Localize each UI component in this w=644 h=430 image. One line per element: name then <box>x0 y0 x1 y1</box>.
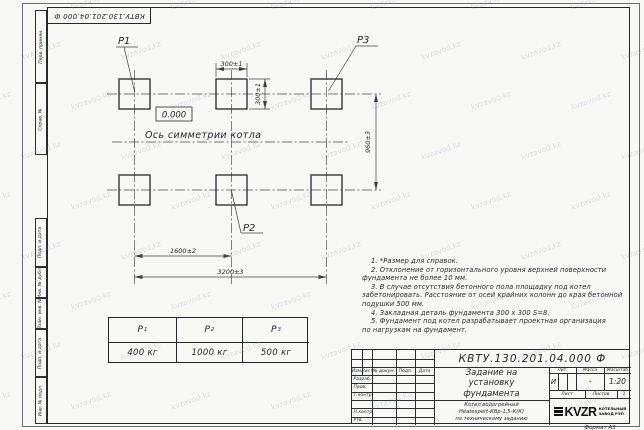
load-point-label-p3: P3 <box>357 35 369 46</box>
note-line: фундамента не более 10 мм. <box>362 274 634 283</box>
tb-sheets-label: Листов <box>585 390 617 398</box>
tb-row-blank <box>354 400 373 408</box>
tb-lit-value: И <box>549 373 558 390</box>
logo-bars-icon <box>554 406 563 418</box>
tb-scale-value: 1:20 <box>604 373 631 390</box>
note-line: 2. Отклонение от горизонтального уровня … <box>362 266 634 275</box>
product-name: Котел водогрейный Heatexpert-КВр-1,5-К(К… <box>434 400 549 425</box>
load-table-value-p3: 500 кг <box>242 342 309 362</box>
note-line: 1. *Размер для справок. <box>362 257 634 266</box>
notes-block: 1. *Размер для справок. 2. Отклонение от… <box>362 257 634 334</box>
note-line: 5. Фундамент под котел разрабатывает про… <box>362 317 634 326</box>
dim-row-spacing-label: 960±3 <box>364 131 372 153</box>
note-line: 3. В случае отсутствия бетонного пола пл… <box>362 283 634 292</box>
tb-col-data: Дата <box>415 367 434 375</box>
dim-total-width-label: 3200±3 <box>217 268 243 276</box>
note-line: по нагрузкам на фундамент. <box>362 326 634 335</box>
tb-col-podp: Подп. <box>396 367 415 375</box>
note-line: подушки 500 мм. <box>362 300 634 309</box>
arrowhead <box>135 254 143 258</box>
arrowhead <box>319 275 327 279</box>
logo-subtitle: КОТЕЛЬНЫЙ ЗАВОД РЭП <box>599 407 627 416</box>
dim-pad-height-label: 300±1 <box>254 83 262 105</box>
note-line: 4. Закладная деталь фундамента 300 х 300… <box>362 309 634 318</box>
arrowhead <box>263 79 267 87</box>
tb-line <box>558 373 559 390</box>
tb-line <box>396 350 397 425</box>
load-table-value-p1: 400 кг <box>109 342 176 362</box>
arrowhead <box>374 182 378 190</box>
tb-col-list: Лист <box>362 367 372 375</box>
tb-row-razrab: Разраб. <box>354 375 373 383</box>
load-table-header-p3: P3 <box>242 318 309 342</box>
tb-row-utv: Утв. <box>354 417 373 425</box>
tb-row-tkontr: Т.контр. <box>354 392 373 400</box>
title-block: КВТУ.130.201.04.000 Ф Изм. Лист № докум.… <box>351 349 630 424</box>
tb-sheets-value: 1 <box>617 390 631 398</box>
arrowhead <box>263 101 267 109</box>
doc-number: КВТУ.130.201.04.000 Ф <box>434 350 631 367</box>
tb-line <box>567 373 568 390</box>
tb-col-dokum: № докум. <box>372 367 396 375</box>
tb-row-nkontr: Н.контр. <box>354 408 373 416</box>
logo-text: KVZR <box>565 405 597 419</box>
arrowhead <box>224 254 232 258</box>
dim-pad-width-label: 300±1 <box>221 60 243 68</box>
load-table-header-p2: P2 <box>176 318 242 342</box>
symmetry-axis-label: Ось симметрии котла <box>145 130 261 141</box>
load-point-label-p1: P1 <box>118 36 130 47</box>
tb-line <box>415 350 416 425</box>
arrowhead <box>135 275 143 279</box>
tb-row-prov: Пров. <box>354 383 373 391</box>
dim-row-spacing <box>374 94 378 190</box>
elevation-mark-label: 0.000 <box>162 111 186 121</box>
center-lines <box>107 70 381 285</box>
tb-sheet-label: Лист <box>549 390 585 398</box>
tb-line <box>352 359 434 360</box>
arrowhead <box>374 94 378 102</box>
load-point-label-p2: P2 <box>243 223 255 234</box>
document-title: Задание на установку фундамента <box>434 367 549 400</box>
tb-mass-value: - <box>576 373 604 390</box>
dim-col-spacing-label: 1600±2 <box>170 247 196 255</box>
drawing-sheet: КВТУ.130.201.04.000 Ф Перв. примен. Спра… <box>0 0 644 430</box>
note-line: забетонировать. Расстояние от осей крайн… <box>362 291 634 300</box>
format-label: Формат А3 <box>560 425 640 430</box>
load-table-header-p1: P1 <box>109 318 176 342</box>
load-table: P1 P2 P3 400 кг 1000 кг 500 кг <box>108 317 308 363</box>
load-table-value-p2: 1000 кг <box>176 342 242 362</box>
company-logo: KVZR КОТЕЛЬНЫЙ ЗАВОД РЭП <box>549 398 631 425</box>
leader-p3 <box>329 46 379 91</box>
